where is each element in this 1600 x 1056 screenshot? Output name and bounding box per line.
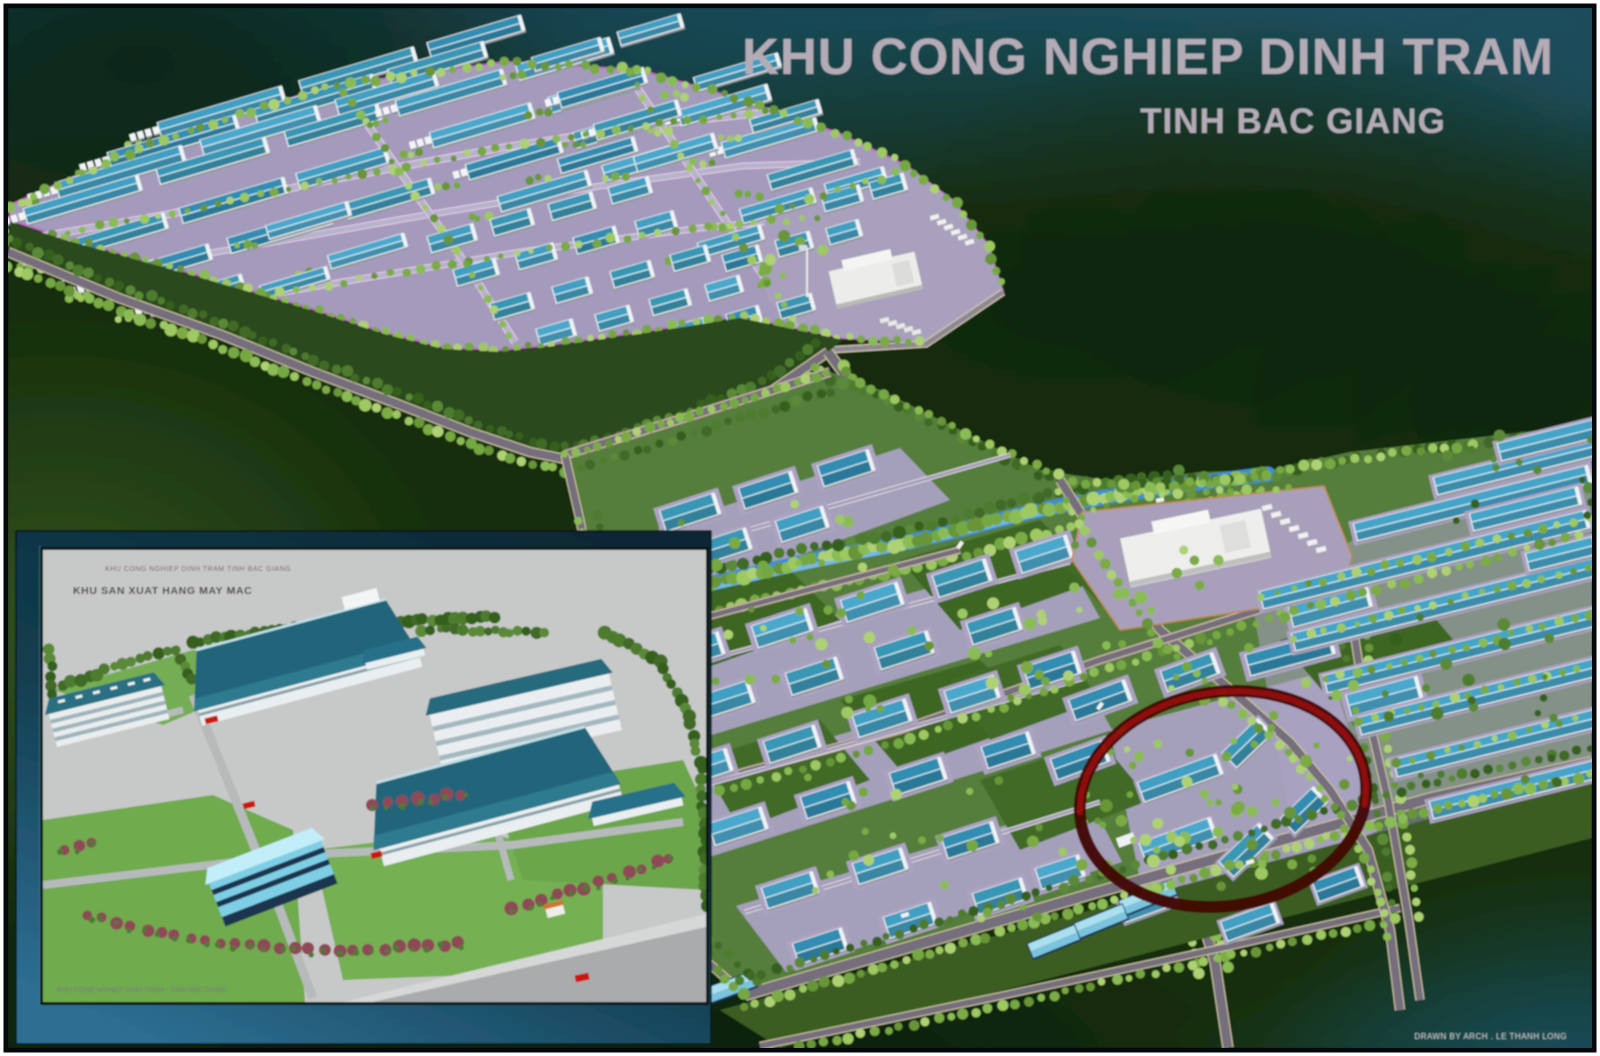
- svg-text:KHU SAN XUAT HANG MAY MAC: KHU SAN XUAT HANG MAY MAC: [73, 585, 252, 597]
- svg-text:KHU CONG NGHIEP DINH TRAM: KHU CONG NGHIEP DINH TRAM: [742, 28, 1554, 85]
- svg-text:TINH BAC GIANG: TINH BAC GIANG: [1140, 102, 1446, 141]
- svg-text:KHU CONG NGHIEP DINH TRAM TINH: KHU CONG NGHIEP DINH TRAM TINH BAC GIANG: [105, 566, 291, 573]
- svg-text:KHU CONG NGHIEP DINH TRAM - TI: KHU CONG NGHIEP DINH TRAM - TINH BAC GIA…: [57, 987, 227, 994]
- svg-text:DRAWN BY ARCH . LE THANH LONG: DRAWN BY ARCH . LE THANH LONG: [1414, 1032, 1567, 1041]
